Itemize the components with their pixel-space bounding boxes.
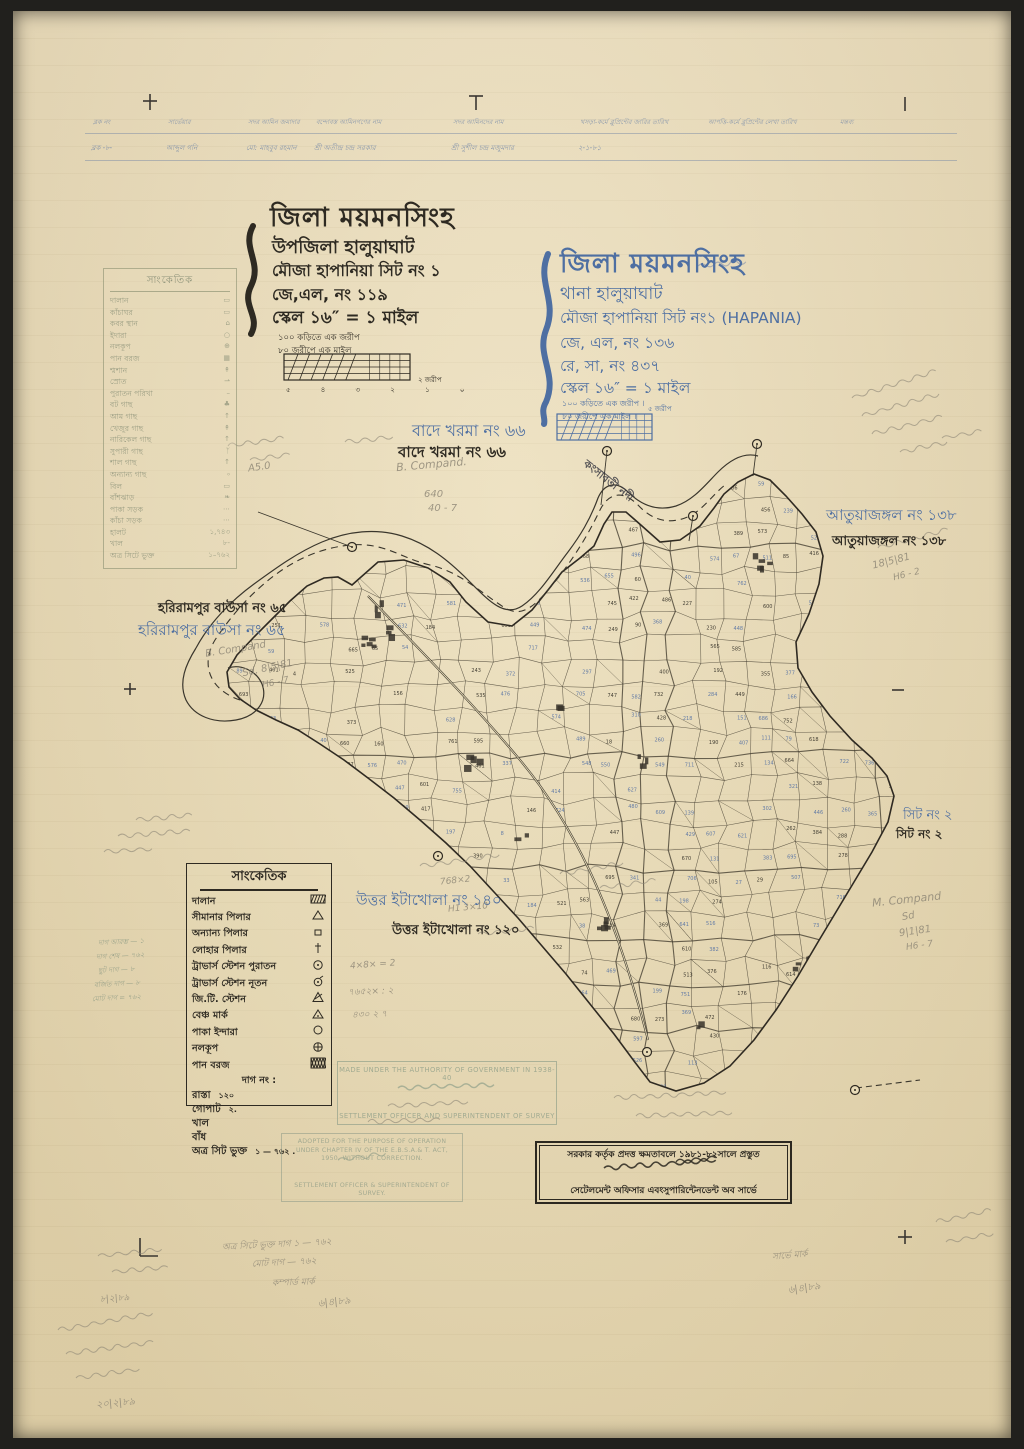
legend-main-item: পান বরজ — [192, 1057, 326, 1073]
table-header-cell: ব্লক নং — [93, 119, 168, 126]
pencil-note: ৮|২|৮৯ — [100, 1290, 130, 1307]
map-label-harirampur-black: হরিরামপুর বাউসা নং ৬৫ — [158, 599, 287, 620]
legend-faded-symbol: ▦ — [223, 353, 230, 365]
authority-stamp: MADE UNDER THE AUTHORITY OF GOVERNMENT I… — [337, 1061, 557, 1125]
legend-faded-symbol: ৹ — [227, 469, 230, 481]
legend-faded-item: কাঁচাঘর▭ — [110, 307, 230, 319]
table-header-cell: বন্দোবস্ত আমিনগণের নাম — [316, 119, 453, 126]
legend-faded-label: পাকা সড়ক — [110, 504, 143, 516]
legend-faded-label: কাঁচাঘর — [110, 307, 133, 319]
adopted-stamp-line5: SURVEY. — [282, 1190, 462, 1199]
circdot-symbol-icon — [310, 959, 326, 975]
adopted-stamp-line3: 1950, WITHOUT CORRECTION. — [282, 1155, 462, 1164]
pencil-note: বর্জিত দাগ — ৮ — [94, 977, 141, 991]
legend-main-extra: গোপাট২. — [192, 1103, 326, 1117]
legend-faded-item: সুপারী গাছᛉ — [110, 446, 230, 458]
table-rule — [85, 133, 957, 134]
legend-main-label: পান বরজ — [192, 1059, 230, 1072]
legend-faded-item: নলকূপ⊕ — [110, 341, 230, 353]
map-label-atuajangal-blue: আতুয়াজঙ্গল নং ১৩৮ — [826, 504, 957, 529]
legend-faded-label: অত্র সিটে ভুক্ত — [110, 550, 154, 562]
legend-faded-item: হালট১,৭৪৩ — [110, 527, 230, 539]
legend-faded-symbol: ⌂ — [226, 318, 230, 330]
legend-faded-label: হালট — [110, 527, 126, 539]
scanned-map-page: 3276648652245462394671145129360664725560… — [0, 0, 1024, 1449]
adopted-stamp-line2: UNDER CHAPTER IV OF THE E.B.S.A.& T. ACT… — [282, 1147, 462, 1156]
legend-faded-item: অত্র সিটে ভুক্ত১–৭৬২ — [110, 550, 230, 562]
legend-faded-symbol: ↑ — [224, 457, 230, 469]
legend-main-item: দালান — [192, 893, 326, 909]
pencil-note: ২০|২|৮৯ — [95, 1394, 136, 1414]
legend-main-extra: রাস্তা১২০ — [192, 1089, 326, 1103]
table-header-cell: সদর আমিনদের নাম — [453, 119, 580, 126]
hatch-symbol-icon — [310, 893, 326, 909]
table-rule — [85, 160, 957, 161]
adopted-stamp-line4: SETTLEMENT OFFICER & SUPERINTENDENT OF — [282, 1182, 462, 1191]
map-sheet-paper — [13, 11, 1011, 1438]
legend-main-item: নলকূপ — [192, 1041, 326, 1057]
legend-faded-symbol: ⇀ — [224, 376, 230, 388]
legend-faded-symbol: – — [227, 388, 231, 400]
legend-faded-label: শাল গাছ — [110, 457, 137, 469]
legend-faded-label: খেজুর গাছ — [110, 423, 143, 435]
legend-faded-item: বিল▭ — [110, 481, 230, 493]
legend-faded-label: অন্যান্য গাছ — [110, 469, 146, 481]
pencil-note: দাগ শেষ — ৭৬২ — [96, 949, 145, 964]
pencil-note: ৭৬৫২× : ২ — [348, 983, 394, 1000]
legend-main-label: অন্যান্য পিলার — [192, 927, 248, 940]
table-entry-cell: মো: মাহবুব রহমান — [246, 142, 297, 154]
bengali-stamp-line2: সেটেলমেন্ট অফিসার এবংসুপারিন্টেনডেন্ট অব… — [537, 1183, 790, 1198]
legend-main-item: বেঞ্চ মার্ক — [192, 1008, 326, 1024]
legend-faded-label: বিল — [110, 481, 122, 493]
pencil-note: 640 — [424, 489, 443, 500]
legend-main-item: ট্রাভার্স স্টেশন পুরাতন — [192, 959, 326, 975]
scalebar-unit-black: ২ জরীপ — [418, 374, 442, 386]
pencil-note: 40 - 7 — [428, 503, 457, 514]
legend-faded-symbol: ১,৭৪৩ — [210, 527, 230, 539]
legend-faded-item: স্রোত⇀ — [110, 376, 230, 388]
legend-main-label: লোহার পিলার — [192, 944, 247, 957]
authority-stamp-line2: SETTLEMENT OFFICER AND SUPERINTENDENT OF… — [338, 1112, 556, 1120]
legend-main-label: ট্রাভার্স স্টেশন নূতন — [192, 977, 267, 990]
xhatch-symbol-icon — [310, 1057, 326, 1073]
pencil-note: ৬|৪|৮৯ — [317, 1293, 351, 1313]
extra-label: গোপাট — [192, 1103, 221, 1117]
legend-faded-item: ইদারা○ — [110, 330, 230, 342]
legend-faded-symbol: ▭ — [223, 307, 230, 319]
legend-faded-symbol: ↑ — [224, 434, 230, 446]
legend-main-label: বেঞ্চ মার্ক — [192, 1009, 228, 1022]
table-header-cell: সদর আমিন জমাদার — [248, 119, 316, 126]
scalebar-ticks-black: ৫ ৪ ৩ ২ ১ ০ — [286, 384, 478, 396]
legend-faded-label: পান বরজ — [110, 353, 140, 365]
table-header-cell: খসড়া-কর্মে ব্লুপ্রিন্টের জারির তারিখ — [580, 119, 708, 126]
legend-faded-label: পুরাতন পরিখা — [110, 388, 153, 400]
legend-main-label: জি.টি. স্টেশন — [192, 993, 246, 1006]
legend-faded-label: কাঁচা সড়ক — [110, 515, 142, 527]
legend-faded-item: পুরাতন পরিখা– — [110, 388, 230, 400]
table-entry-cell: শ্রী অতীন্দ্র চন্দ্র সরকার — [314, 142, 376, 154]
legend-faded-label: বট গাছ — [110, 399, 133, 411]
legend-faded-item: বট গাছ♣ — [110, 399, 230, 411]
legend-faded-label: আম গাছ — [110, 411, 137, 423]
table-entry-cell: শ্রী সুশীল চন্দ্র মজুমদার — [451, 142, 514, 154]
pencil-note: Sd — [901, 910, 915, 923]
pencil-note: মোট দাগ = ৭৬২ — [92, 991, 142, 1006]
map-label-sheet2-black: সিট নং ২ — [896, 826, 942, 846]
extra-value: ১২০ — [219, 1089, 235, 1103]
legend-main-label: নলকূপ — [192, 1042, 218, 1055]
legend-faded-symbol: ১–৭৬২ — [208, 550, 230, 562]
pencil-note: ছুট দাগ — ৮ — [98, 963, 135, 977]
legend-faded-label: বাঁশঝাড় — [110, 492, 134, 504]
legend-box-faded: সাংকেতিক দালান▭কাঁচাঘর▭কবর স্থান⌂ইদারা○ন… — [103, 268, 237, 569]
dagger-symbol-icon — [310, 942, 326, 958]
legend-main-label: সীমানার পিলার — [192, 911, 251, 924]
legend-faded-label: সুপারী গাছ — [110, 446, 143, 458]
legend-main-extra: খাল — [192, 1117, 326, 1131]
legend-faded-label: ইদারা — [110, 330, 127, 342]
mouza-title-blue: মৌজা হাপানিয়া সিট নং১ (HAPANIA) — [560, 306, 802, 332]
adopted-stamp: ADOPTED FOR THE PURPOSE OF OPERATION UND… — [281, 1133, 463, 1202]
dag-number-label: দাগ নং : — [192, 1074, 326, 1089]
legend-faded-item: বাঁশঝাড়❧ — [110, 492, 230, 504]
legend-faded-label: স্রোত — [110, 376, 127, 388]
map-label-sheet2-blue: সিট নং ২ — [903, 806, 952, 827]
legend-main-item: ট্রাভার্স স্টেশন নূতন — [192, 975, 326, 991]
legend-faded-symbol: ৮- — [223, 538, 230, 550]
pencil-note: দাগ আরম্ভ — ১ — [98, 935, 145, 949]
btri-symbol-icon — [310, 1008, 326, 1024]
legend-faded-item: খেজুর গাছ↟ — [110, 423, 230, 435]
scalebar-unit-blue: ৫ জরীপ — [648, 403, 672, 415]
table-entry-cell: ব্লক -৮- — [91, 142, 112, 154]
legend-faded-item: অন্যান্য গাছ৹ — [110, 469, 230, 481]
table-header-cell: মন্তব্য — [840, 119, 960, 126]
table-entry-cell: ২-১-৮১ — [578, 142, 601, 154]
map-label-itakhola-black: উত্তর ইটাখোলা নং ১২০ — [392, 921, 519, 942]
legend-faded-symbol: ○ — [224, 330, 230, 342]
thana-title: থানা হালুয়াঘাট — [560, 281, 663, 309]
legend-main-item: সীমানার পিলার — [192, 909, 326, 925]
legend-faded-symbol: ⋯ — [223, 504, 230, 516]
scale-note1-black: ১০০ কড়িতে এক জরীপ — [278, 331, 360, 345]
gtri-symbol-icon — [310, 991, 326, 1007]
legend-faded-label: শ্মশান — [110, 365, 127, 377]
table-entry-cell: আব্দুল গনি — [166, 142, 197, 154]
legend-faded-item: দালান▭ — [110, 295, 230, 307]
legend-box-main: সাংকেতিক দালানসীমানার পিলারঅন্যান্য পিলা… — [186, 863, 332, 1106]
legend-faded-item: খাল৮- — [110, 538, 230, 550]
extra-label: রাস্তা — [192, 1089, 211, 1103]
scale-note2-black: ৮০ জরীপে এক মাইল — [278, 344, 351, 358]
extra-label: খাল — [192, 1117, 209, 1131]
sq-symbol-icon — [310, 926, 326, 942]
legend-faded-label: নলকূপ — [110, 341, 131, 353]
legend-main-label: পাকা ইন্দারা — [192, 1026, 238, 1039]
legend-faded-title: সাংকেতিক — [110, 273, 230, 292]
legend-faded-symbol: ⋯ — [223, 515, 230, 527]
circplus-symbol-icon — [310, 1041, 326, 1057]
legend-faded-label: খাল — [110, 538, 123, 550]
bengali-stamp-line1: সরকার কর্তৃক প্রদত্ত ক্ষমতাবলে ১৯৮১-৮২সা… — [537, 1147, 790, 1162]
pencil-note: কম্পার্ড মার্ক — [272, 1274, 315, 1290]
extra-label: অত্র সিট ভুক্ত — [192, 1145, 247, 1159]
pencil-note: সার্ভে মার্ক — [771, 1246, 808, 1264]
legend-faded-item: আম গাছ↑ — [110, 411, 230, 423]
legend-faded-item: পাকা সড়ক⋯ — [110, 504, 230, 516]
map-label-atuajangal-black: আতুয়াজঙ্গল নং ১৩৮ — [832, 532, 946, 553]
table-header-cell: আপত্তি-কর্মে ব্লুপ্রিন্টের লেখা তারিখ — [708, 119, 840, 126]
mouza-title-black: মৌজা হাপানিয়া সিট নং ১ — [272, 258, 441, 285]
legend-faded-item: কাঁচা সড়ক⋯ — [110, 515, 230, 527]
legend-faded-symbol: ↑ — [224, 411, 230, 423]
legend-faded-symbol: ▭ — [223, 481, 230, 493]
legend-main-title: সাংকেতিক — [200, 867, 318, 891]
legend-faded-label: দালান — [110, 295, 129, 307]
circtail-symbol-icon — [310, 975, 326, 991]
circ-symbol-icon — [310, 1024, 326, 1040]
legend-main-label: ট্রাভার্স স্টেশন পুরাতন — [192, 960, 276, 973]
legend-faded-symbol: ▭ — [223, 295, 230, 307]
tri-symbol-icon — [310, 909, 326, 925]
legend-faded-item: নারিকেল গাছ↑ — [110, 434, 230, 446]
legend-main-item: পাকা ইন্দারা — [192, 1024, 326, 1040]
pencil-note: ৪৩০ ২ ৭ — [352, 1006, 387, 1022]
legend-main-item: অন্যান্য পিলার — [192, 926, 326, 942]
extra-value: ২. — [229, 1103, 237, 1117]
legend-faded-label: কবর স্থান — [110, 318, 138, 330]
legend-faded-symbol: ♣ — [224, 399, 230, 411]
bengali-preparation-stamp: সরকার কর্তৃক প্রদত্ত ক্ষমতাবলে ১৯৮১-৮২সা… — [535, 1141, 792, 1204]
legend-faded-item: শ্মশান↟ — [110, 365, 230, 377]
authority-stamp-line1: MADE UNDER THE AUTHORITY OF GOVERNMENT I… — [338, 1066, 556, 1082]
scale-note1-blue: ১০০ কড়িতে এক জরীপ । — [562, 398, 644, 411]
extra-label: বাঁধ — [192, 1131, 206, 1145]
legend-faded-item: পান বরজ▦ — [110, 353, 230, 365]
legend-faded-item: শাল গাছ↑ — [110, 457, 230, 469]
scale-note2-blue: ৮০ জরীপে এক মাইল । — [562, 411, 636, 424]
legend-faded-symbol: ❧ — [224, 492, 230, 504]
scale-black: স্কেল ১৬″ = ১ মাইল — [272, 305, 418, 333]
legend-faded-label: নারিকেল গাছ — [110, 434, 151, 446]
legend-faded-symbol: ⊕ — [224, 341, 230, 353]
legend-main-label: দালান — [192, 895, 215, 908]
legend-faded-symbol: ↟ — [224, 423, 230, 435]
legend-faded-symbol: ↟ — [224, 365, 230, 377]
legend-main-item: জি.টি. স্টেশন — [192, 991, 326, 1007]
table-header-cell: সার্ভেয়ার — [168, 119, 248, 126]
legend-faded-item: কবর স্থান⌂ — [110, 318, 230, 330]
legend-faded-symbol: ᛉ — [226, 446, 230, 458]
adopted-stamp-line1: ADOPTED FOR THE PURPOSE OF OPERATION — [282, 1138, 462, 1147]
legend-main-item: লোহার পিলার — [192, 942, 326, 958]
